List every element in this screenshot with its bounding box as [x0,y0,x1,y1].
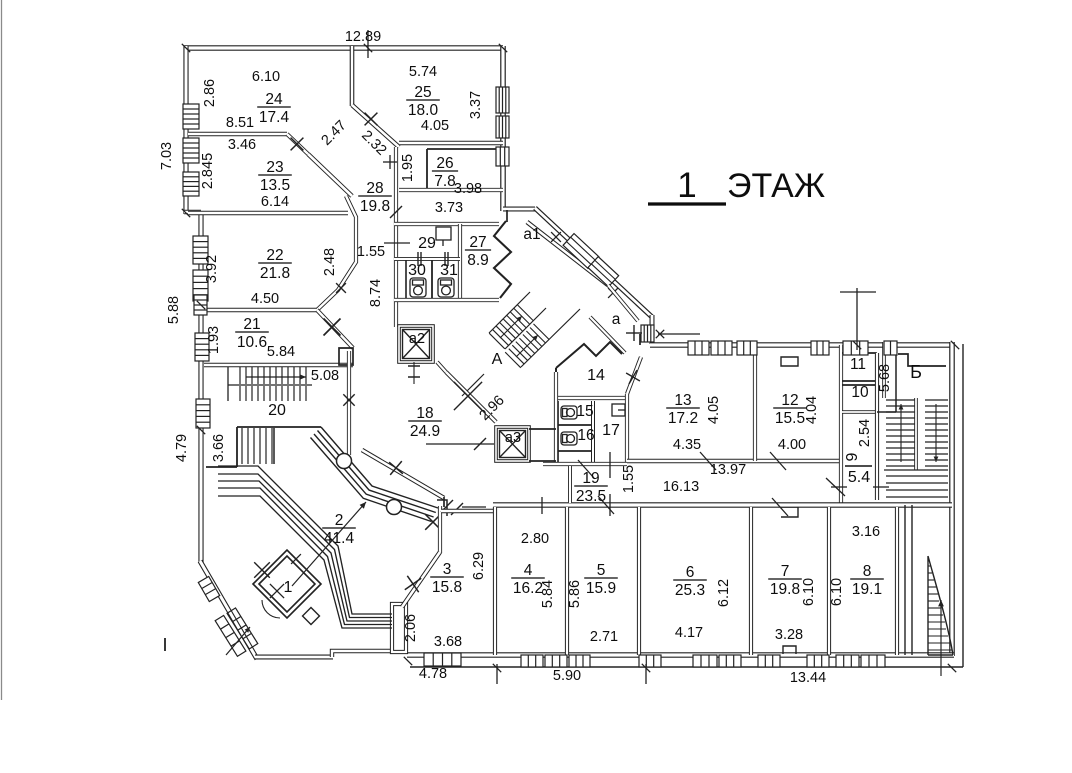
svg-text:29: 29 [418,235,436,252]
svg-text:25: 25 [414,84,431,101]
svg-text:1: 1 [677,166,696,205]
svg-text:24.9: 24.9 [410,423,440,440]
svg-text:17.4: 17.4 [259,109,290,126]
svg-text:21: 21 [243,316,260,333]
svg-text:15.9: 15.9 [586,580,616,597]
svg-text:1: 1 [284,579,293,596]
svg-text:13.44: 13.44 [790,670,826,686]
svg-text:9: 9 [844,452,861,461]
svg-text:3: 3 [443,561,452,578]
svg-text:8.74: 8.74 [368,279,384,307]
svg-text:5.74: 5.74 [409,64,437,80]
svg-text:15.5: 15.5 [775,410,805,427]
svg-text:23: 23 [266,159,283,176]
svg-text:12: 12 [781,392,798,409]
svg-text:22: 22 [266,247,283,264]
svg-text:5.88: 5.88 [166,296,182,324]
svg-text:4.50: 4.50 [251,291,279,307]
svg-text:4.78: 4.78 [419,666,447,682]
svg-text:1.55: 1.55 [357,244,385,260]
svg-text:26: 26 [436,155,453,172]
svg-text:6.29: 6.29 [471,552,487,580]
svg-text:5.84: 5.84 [267,344,295,360]
svg-text:4.35: 4.35 [673,437,701,453]
svg-text:ЭТАЖ: ЭТАЖ [727,167,825,205]
svg-text:7.03: 7.03 [159,142,175,170]
svg-text:19.8: 19.8 [770,581,800,598]
svg-text:21.8: 21.8 [260,265,290,282]
svg-text:6.10: 6.10 [801,578,817,606]
svg-text:а2: а2 [409,331,425,347]
svg-text:4.00: 4.00 [778,437,806,453]
svg-text:14: 14 [587,367,605,384]
svg-text:4.05: 4.05 [706,396,722,424]
svg-text:1.95: 1.95 [400,154,416,182]
svg-text:16.2: 16.2 [513,580,543,597]
svg-text:3.92: 3.92 [204,255,220,283]
svg-text:12.89: 12.89 [345,29,381,45]
svg-text:7: 7 [781,563,790,580]
svg-text:3.73: 3.73 [435,200,463,216]
svg-text:2.845: 2.845 [200,153,216,189]
svg-text:31: 31 [440,262,458,279]
svg-text:5.4: 5.4 [848,469,870,486]
svg-text:18: 18 [416,405,433,422]
svg-text:10: 10 [851,384,869,401]
svg-text:2.71: 2.71 [590,629,618,645]
svg-text:6.10: 6.10 [252,69,280,85]
svg-text:5.84: 5.84 [540,580,556,608]
svg-text:6.12: 6.12 [716,579,732,607]
svg-text:18.0: 18.0 [408,102,439,119]
svg-text:а: а [612,311,621,328]
svg-text:10.6: 10.6 [237,334,267,351]
svg-text:Б: Б [910,362,922,382]
svg-text:6: 6 [686,564,695,581]
svg-text:4: 4 [524,562,533,579]
svg-text:3.98: 3.98 [454,181,482,197]
svg-text:4.05: 4.05 [421,118,449,134]
svg-text:8.51: 8.51 [226,115,254,131]
svg-text:3.37: 3.37 [468,91,484,119]
svg-text:17: 17 [602,422,620,439]
svg-text:5.86: 5.86 [567,580,583,608]
svg-text:30: 30 [408,262,426,279]
svg-text:4.17: 4.17 [675,625,703,641]
svg-text:25.3: 25.3 [675,582,705,599]
svg-text:А: А [492,351,503,368]
svg-text:27: 27 [469,234,486,251]
svg-text:2.86: 2.86 [202,79,218,107]
svg-text:5: 5 [597,562,606,579]
svg-text:3.46: 3.46 [228,137,256,153]
svg-text:5.68: 5.68 [877,364,893,392]
svg-text:23.5: 23.5 [576,488,606,505]
svg-text:17.2: 17.2 [668,410,698,427]
svg-text:19.1: 19.1 [852,581,882,598]
svg-text:3.16: 3.16 [852,524,880,540]
svg-text:3.66: 3.66 [211,434,227,462]
svg-text:1.55: 1.55 [621,465,637,493]
svg-text:15.8: 15.8 [432,579,462,596]
svg-text:а3: а3 [505,430,521,446]
svg-text:2.54: 2.54 [857,419,873,447]
svg-text:28: 28 [366,180,383,197]
svg-text:13: 13 [674,392,691,409]
svg-text:24: 24 [265,91,283,108]
svg-text:8.9: 8.9 [467,252,489,269]
svg-text:2.06: 2.06 [403,614,419,642]
svg-text:2: 2 [335,512,344,529]
svg-text:4.04: 4.04 [804,396,820,424]
svg-text:11: 11 [850,356,866,373]
svg-text:3.28: 3.28 [775,627,803,643]
svg-text:4.79: 4.79 [174,434,190,462]
svg-text:3.68: 3.68 [434,634,462,650]
svg-text:41.4: 41.4 [324,530,355,547]
svg-text:1.93: 1.93 [206,326,222,354]
svg-text:15: 15 [576,403,593,420]
svg-text:7.8: 7.8 [434,173,456,190]
svg-text:19: 19 [582,470,599,487]
svg-text:5.08: 5.08 [311,368,339,384]
svg-text:6.10: 6.10 [829,578,845,606]
svg-text:6.14: 6.14 [261,194,289,210]
svg-text:а1: а1 [523,226,540,243]
svg-text:13.5: 13.5 [260,177,290,194]
svg-text:20: 20 [268,402,286,419]
svg-text:2.80: 2.80 [521,531,549,547]
svg-text:19.8: 19.8 [360,198,390,215]
svg-text:8: 8 [863,563,872,580]
svg-text:16: 16 [577,427,594,444]
svg-text:2.48: 2.48 [322,248,338,276]
svg-text:16.13: 16.13 [663,479,699,495]
svg-text:5.90: 5.90 [553,668,581,684]
svg-text:13.97: 13.97 [710,462,746,478]
